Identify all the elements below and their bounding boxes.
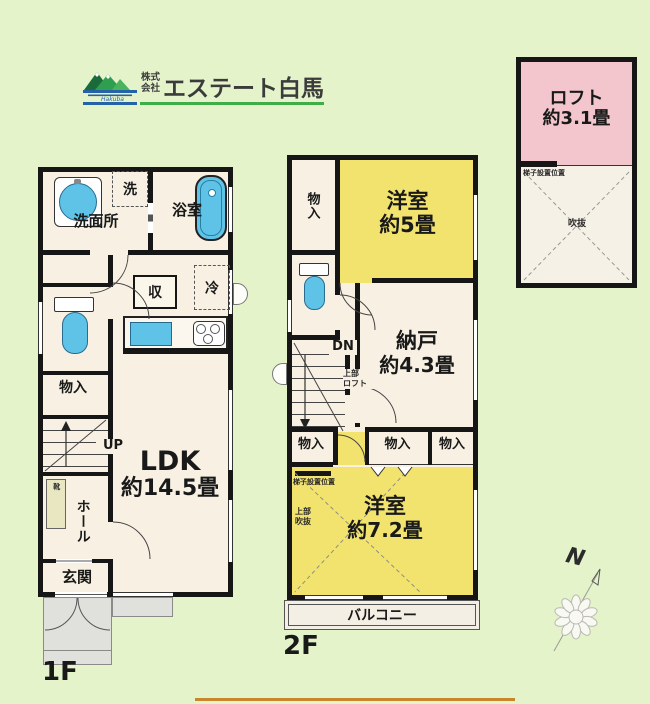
washer-label: 洗 [123, 179, 137, 199]
storage-b-label: 物入 [369, 438, 426, 453]
compass: N [540, 545, 615, 660]
washer-space: 洗 [112, 171, 148, 207]
ladder-note-2f: 梯子設置位置 [293, 478, 355, 487]
loft-size: 約3.1畳 [526, 109, 627, 129]
loft-void-label: 吹抜 [562, 219, 592, 230]
entrance-inner-door [56, 559, 92, 563]
west72-window-right [473, 490, 478, 570]
balcony: バルコニー [284, 600, 480, 630]
washroom-door-opening [90, 250, 128, 255]
ladder-mark-2f [295, 471, 331, 476]
storage-top-label: 物入 [304, 169, 319, 243]
loft-label: ロフト 約3.1畳 [526, 89, 627, 129]
storage-label-1f: 物入 [42, 381, 104, 397]
mountain-logo-icon: Hakuba [83, 68, 137, 102]
ldk-label: LDK 約14.5畳 [110, 447, 230, 502]
storeroom-label: 納戸 約4.3畳 [363, 330, 471, 376]
kitchen-sink [130, 322, 172, 346]
door-flap-1f [233, 283, 248, 305]
balcony-label: バルコニー [347, 605, 417, 625]
fridge-space: 冷 [194, 265, 230, 310]
west72-size: 約7.2畳 [320, 519, 450, 541]
door-flap-2f [272, 363, 287, 385]
logo-underline-green [140, 102, 324, 105]
shoe-label: 靴 [52, 483, 61, 491]
west5-door-opening [340, 278, 372, 283]
kitchen-pantry-box: 収 [133, 275, 177, 309]
west5-size: 約5畳 [350, 214, 465, 238]
kitchen-counter [123, 316, 228, 350]
washroom-label: 洗面所 [60, 213, 132, 230]
toilet2-window [287, 300, 292, 332]
floor1-label: 1F [42, 658, 82, 687]
west72-name: 洋室 [320, 495, 450, 519]
loft-floor-edge [546, 165, 632, 166]
hall-label: ホール [74, 483, 90, 559]
ldk-size: 約14.5畳 [110, 477, 230, 502]
entrance-step [112, 597, 173, 617]
storeroom-size: 約4.3畳 [363, 354, 471, 376]
faucet [74, 179, 81, 184]
fridge-label: 冷 [205, 278, 219, 298]
floor2-label: 2F [283, 632, 323, 661]
logo-underline-blue [83, 102, 137, 105]
company-logo: Hakuba 株式会社 エステート白馬 [83, 68, 328, 110]
counter-front-wall [123, 348, 228, 354]
toilet-tank [54, 297, 94, 312]
stove [193, 321, 225, 346]
storeroom-name: 納戸 [363, 330, 471, 354]
bath-window [228, 187, 233, 232]
storage-c-label: 物入 [431, 438, 473, 453]
west5-window [473, 195, 478, 260]
entrance-label: 玄関 [54, 569, 100, 586]
storage-a-label: 物入 [289, 438, 333, 453]
landing-opening [338, 427, 365, 432]
toilet2-tank [299, 263, 329, 276]
void-above-note: 上部 吹抜 [295, 507, 315, 527]
company-name: エステート白馬 [163, 69, 328, 103]
toilet-window-1f [38, 302, 43, 354]
floor1-plan: 洗 洗面所 浴室 冷 収 物入 [38, 167, 233, 597]
ldk-name: LDK [110, 447, 230, 477]
west5-name: 洋室 [350, 190, 465, 214]
bath-drain [208, 189, 216, 197]
bottom-accent-line [195, 698, 515, 701]
loft-name: ロフト [526, 89, 627, 109]
toilet-bowl [62, 312, 88, 354]
bath-door [148, 203, 153, 233]
bath-label: 浴室 [156, 202, 218, 219]
loft-plan: ロフト 約3.1畳 梯子設置位置 吹抜 [516, 57, 637, 288]
ldk-window-right-3 [228, 500, 233, 562]
landing-area [338, 432, 365, 465]
porch-step-line [44, 650, 111, 651]
toilet2-bowl [304, 276, 325, 310]
storeroom-window [473, 320, 478, 400]
west72-label: 洋室 約7.2畳 [320, 495, 450, 541]
porch [43, 597, 112, 665]
loft-ladder-note: 梯子設置位置 [523, 169, 593, 178]
loft-ladder-mark [521, 161, 557, 167]
pantry-label: 収 [148, 282, 162, 302]
stairs-dn-label: DN [329, 340, 357, 355]
company-prefix: 株式会社 [141, 73, 161, 95]
west5-label: 洋室 約5畳 [350, 190, 465, 237]
stairs-2f [292, 343, 345, 427]
floorplan-canvas: Hakuba 株式会社 エステート白馬 ロフト 約3.1畳 梯子設置位置 吹抜 [0, 0, 650, 704]
floor2-plan: DN 上部 ロフト 物入 洋室 約5畳 納戸 約4.3畳 物入 物入 物入 洋室… [287, 155, 478, 600]
shoe-cabinet: 靴 [46, 479, 66, 529]
